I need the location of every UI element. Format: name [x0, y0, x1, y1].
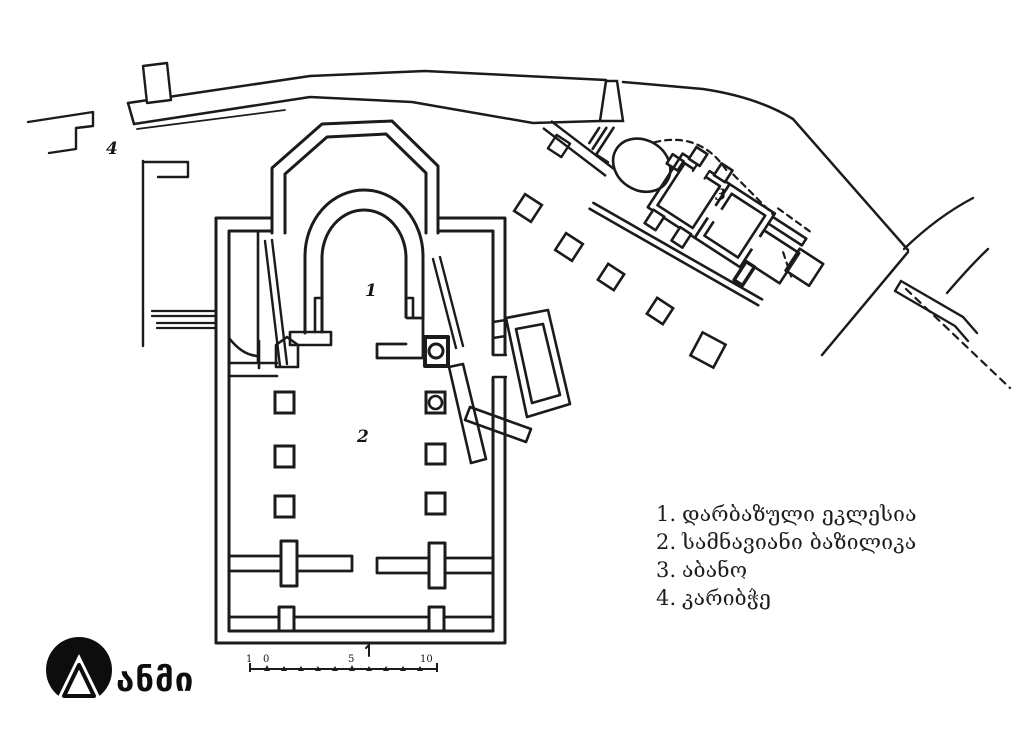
plan-label-gate: 4	[106, 139, 118, 159]
gate-wall-fragments	[28, 63, 215, 346]
hall-church-plan	[229, 121, 448, 368]
scale-label-5: 5	[348, 654, 354, 665]
legend-label: დარბაზული ეკლესია	[682, 502, 917, 526]
scale-label-10: 10	[420, 654, 433, 665]
east-road-fork	[895, 198, 1010, 388]
legend-num: 4.	[656, 584, 682, 612]
legend-num: 1.	[656, 500, 682, 528]
publisher-logo: ანმი	[40, 632, 260, 722]
legend-item-hall-church: 1.დარბაზული ეკლესია	[656, 500, 917, 528]
bath-west-wall	[543, 121, 614, 176]
site-plan-drawing: 1 0 5 10 1 2 3 4	[0, 0, 1024, 739]
legend-item-bath: 3.აბანო	[656, 556, 917, 584]
legend-label: კარიბჭე	[682, 586, 771, 610]
plan-label-hall-church: 1	[365, 281, 377, 301]
legend-num: 3.	[656, 556, 682, 584]
legend-label: სამნავიანი ბაზილიკა	[682, 530, 916, 554]
plan-label-basilica: 2	[356, 427, 369, 447]
site-plan-page: 1 0 5 10 1 2 3 4 1.დარბაზული ეკლესია 2.ს…	[0, 0, 1024, 739]
basilica-annexes	[449, 310, 570, 463]
legend: 1.დარბაზული ეკლესია 2.სამნავიანი ბაზილიკ…	[656, 500, 917, 612]
legend-item-basilica: 2.სამნავიანი ბაზილიკა	[656, 528, 917, 556]
bath-plan	[559, 94, 840, 332]
legend-num: 2.	[656, 528, 682, 556]
logo-text: ანმი	[116, 660, 194, 699]
basilica-pillars	[275, 392, 445, 517]
legend-label: აბანო	[682, 558, 747, 582]
plan-label-bath: 3	[715, 185, 726, 204]
road-tower	[600, 81, 623, 121]
scale-label-0: 0	[263, 654, 269, 665]
scale-bar: 1 0 5 10	[246, 654, 437, 672]
legend-item-gate: 4.კარიბჭე	[656, 584, 917, 612]
